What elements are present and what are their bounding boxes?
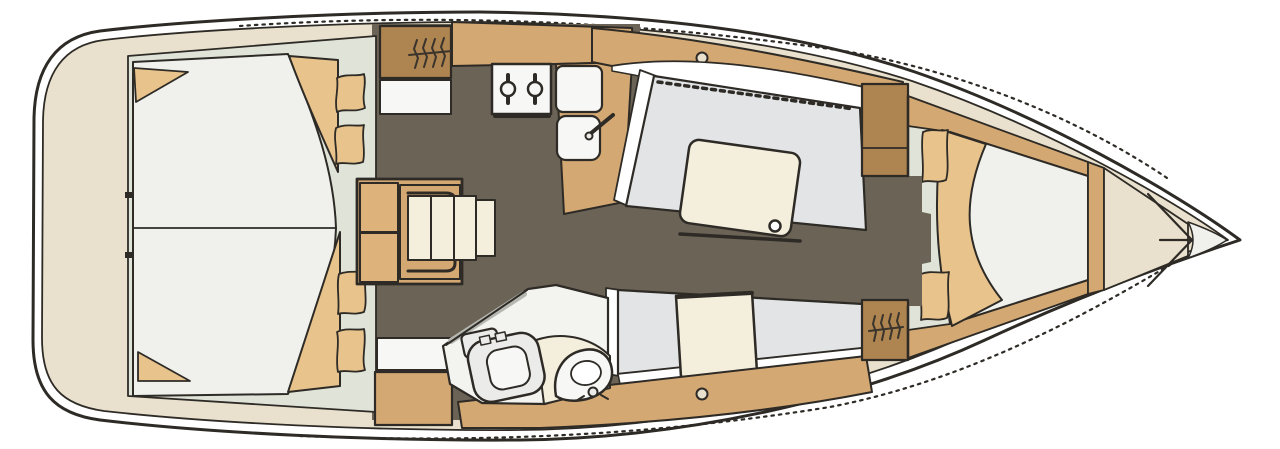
counter-port bbox=[380, 80, 451, 114]
berth-head-fitting bbox=[125, 252, 133, 258]
chart-seat bbox=[676, 292, 757, 377]
deck-hatch-icon bbox=[697, 389, 708, 400]
engine-box bbox=[360, 183, 398, 232]
counter-starboard bbox=[377, 338, 450, 370]
engine-box bbox=[360, 233, 398, 282]
wardrobe-port bbox=[862, 84, 908, 176]
toilet-bowl-inner bbox=[485, 344, 532, 391]
berth-head-fitting bbox=[125, 192, 133, 198]
pillow bbox=[337, 329, 365, 372]
table-leg bbox=[770, 221, 781, 232]
locker-starboard bbox=[375, 372, 452, 425]
pillow bbox=[335, 125, 364, 164]
companionway-steps bbox=[408, 196, 476, 260]
pillow bbox=[920, 272, 949, 320]
salon-table bbox=[679, 139, 802, 238]
galley-sink bbox=[557, 116, 600, 160]
toilet-hinge bbox=[479, 335, 490, 345]
bow-bulkhead bbox=[1088, 162, 1104, 294]
boat-floor-plan-canvas bbox=[0, 0, 1280, 449]
pillow bbox=[336, 74, 365, 112]
pillow bbox=[922, 130, 948, 182]
companionway-step-top bbox=[476, 200, 495, 256]
sailboat-floor-plan bbox=[0, 0, 1280, 449]
galley-faucet-knob bbox=[586, 133, 593, 140]
toilet-hinge bbox=[495, 332, 506, 342]
fridge bbox=[556, 66, 602, 112]
basin-tap-knob bbox=[589, 388, 598, 397]
aft-cabin bbox=[125, 36, 376, 412]
